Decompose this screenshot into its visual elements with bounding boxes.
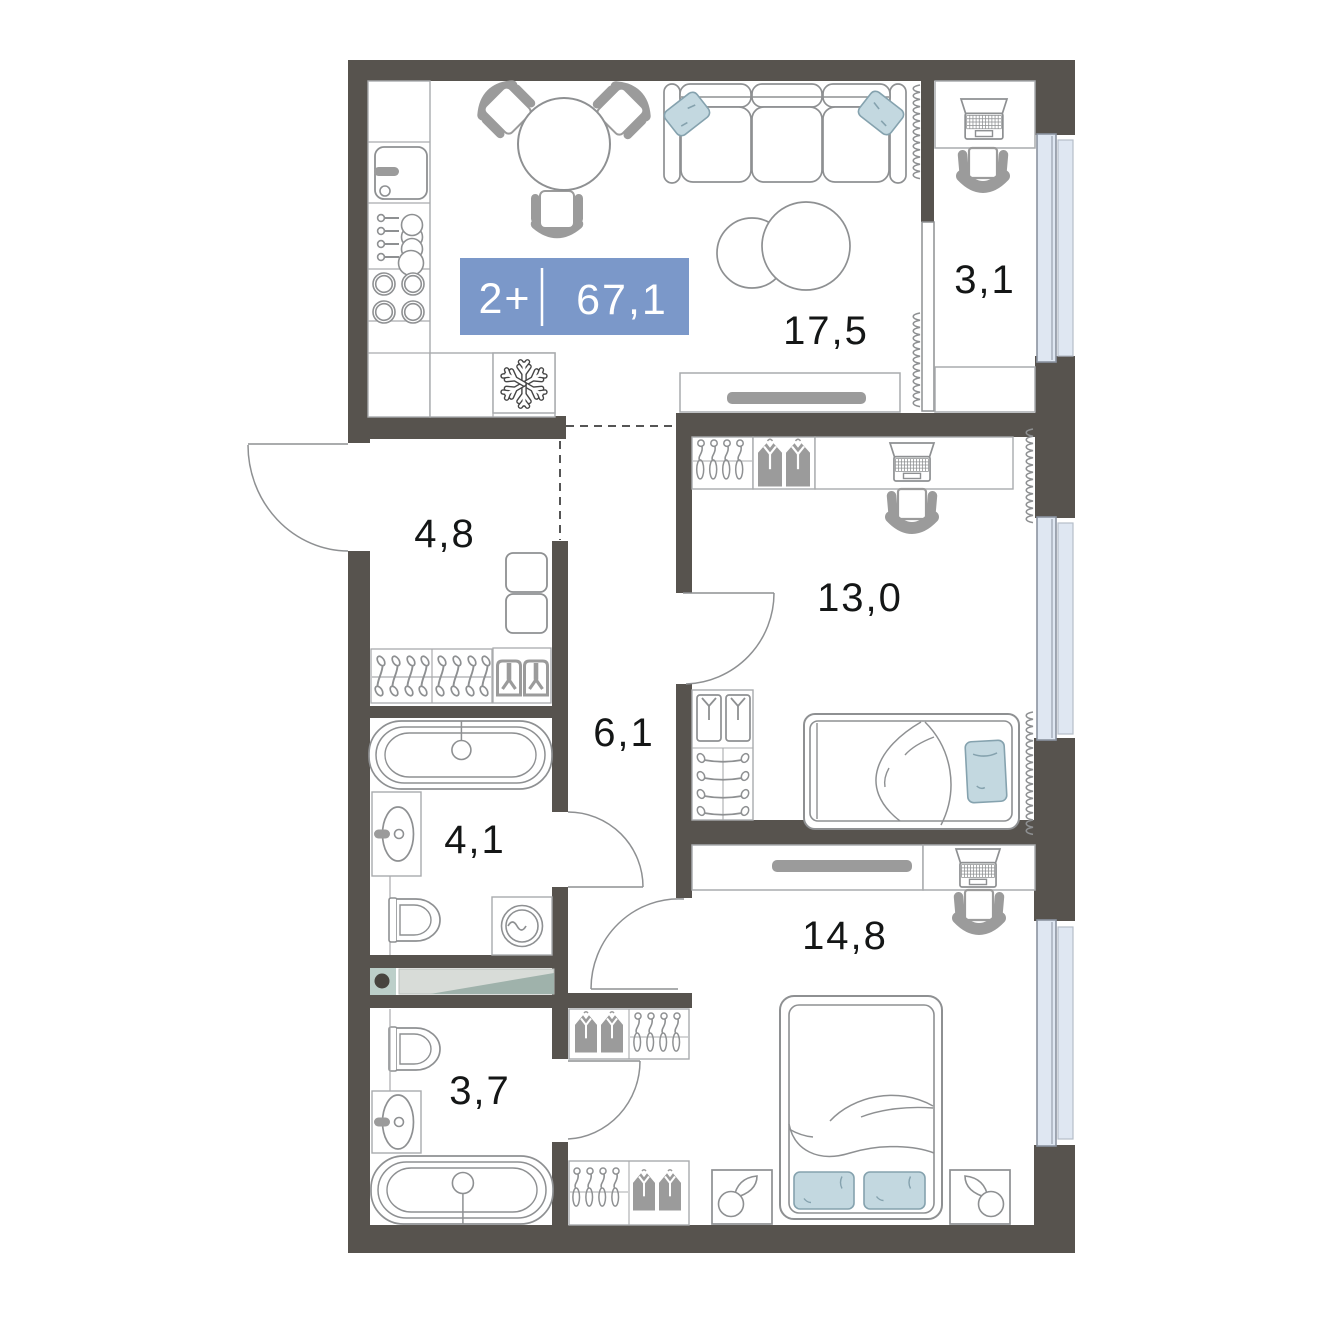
svg-text:2+: 2+ — [478, 275, 531, 323]
svg-text:6,1: 6,1 — [593, 711, 655, 755]
svg-text:14,8: 14,8 — [802, 914, 888, 958]
svg-text:67,1: 67,1 — [576, 276, 668, 324]
svg-text:17,5: 17,5 — [783, 309, 869, 353]
svg-text:3,1: 3,1 — [954, 258, 1016, 302]
svg-text:3,7: 3,7 — [449, 1069, 511, 1113]
svg-text:4,8: 4,8 — [414, 512, 476, 556]
svg-text:4,1: 4,1 — [444, 818, 506, 862]
svg-text:13,0: 13,0 — [817, 576, 903, 620]
